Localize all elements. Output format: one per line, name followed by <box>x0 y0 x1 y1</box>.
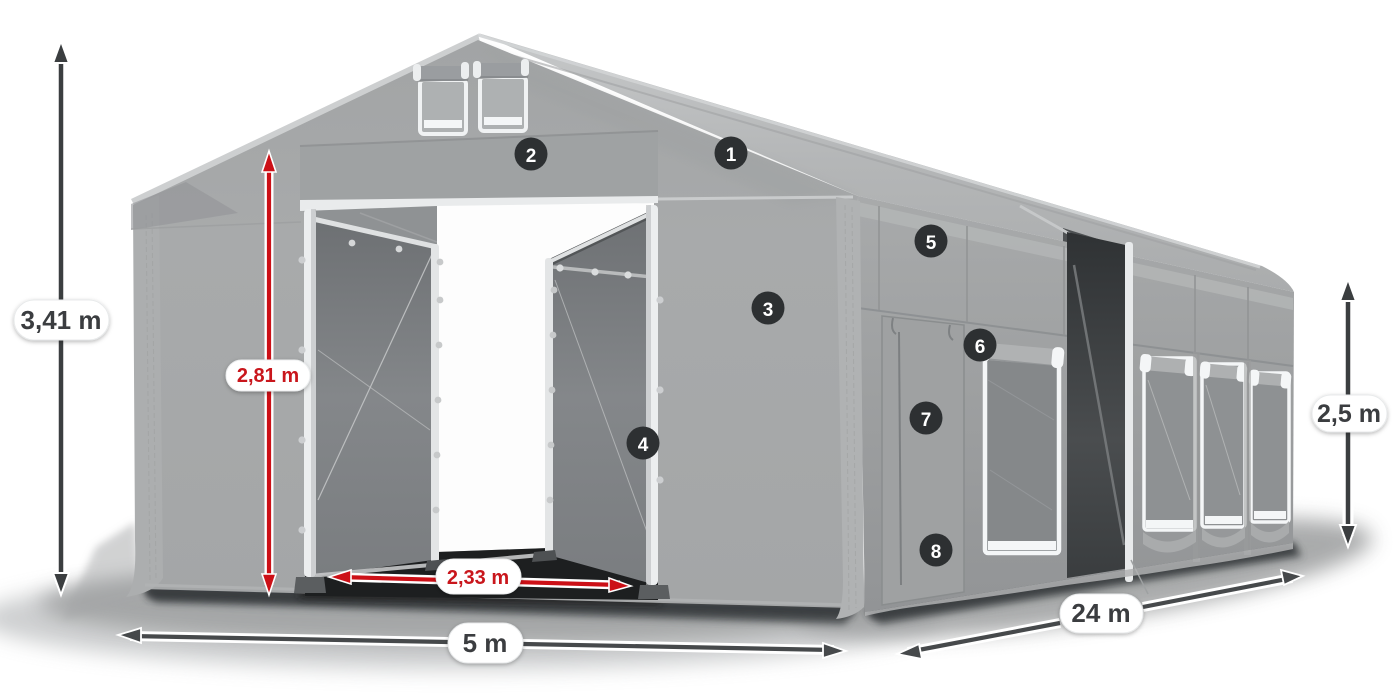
svg-text:5 m: 5 m <box>463 628 508 658</box>
svg-text:5: 5 <box>926 233 937 254</box>
svg-text:3,41 m: 3,41 m <box>21 305 102 335</box>
svg-text:3: 3 <box>763 300 774 321</box>
svg-text:4: 4 <box>638 435 649 456</box>
svg-text:1: 1 <box>726 145 737 166</box>
svg-text:7: 7 <box>921 410 932 431</box>
svg-text:6: 6 <box>975 337 986 358</box>
svg-text:8: 8 <box>931 542 942 563</box>
svg-text:2,81 m: 2,81 m <box>237 365 299 387</box>
svg-text:24 m: 24 m <box>1071 598 1130 628</box>
svg-text:2: 2 <box>526 146 537 167</box>
svg-text:2,5 m: 2,5 m <box>1317 400 1381 428</box>
svg-text:2,33 m: 2,33 m <box>447 567 509 589</box>
